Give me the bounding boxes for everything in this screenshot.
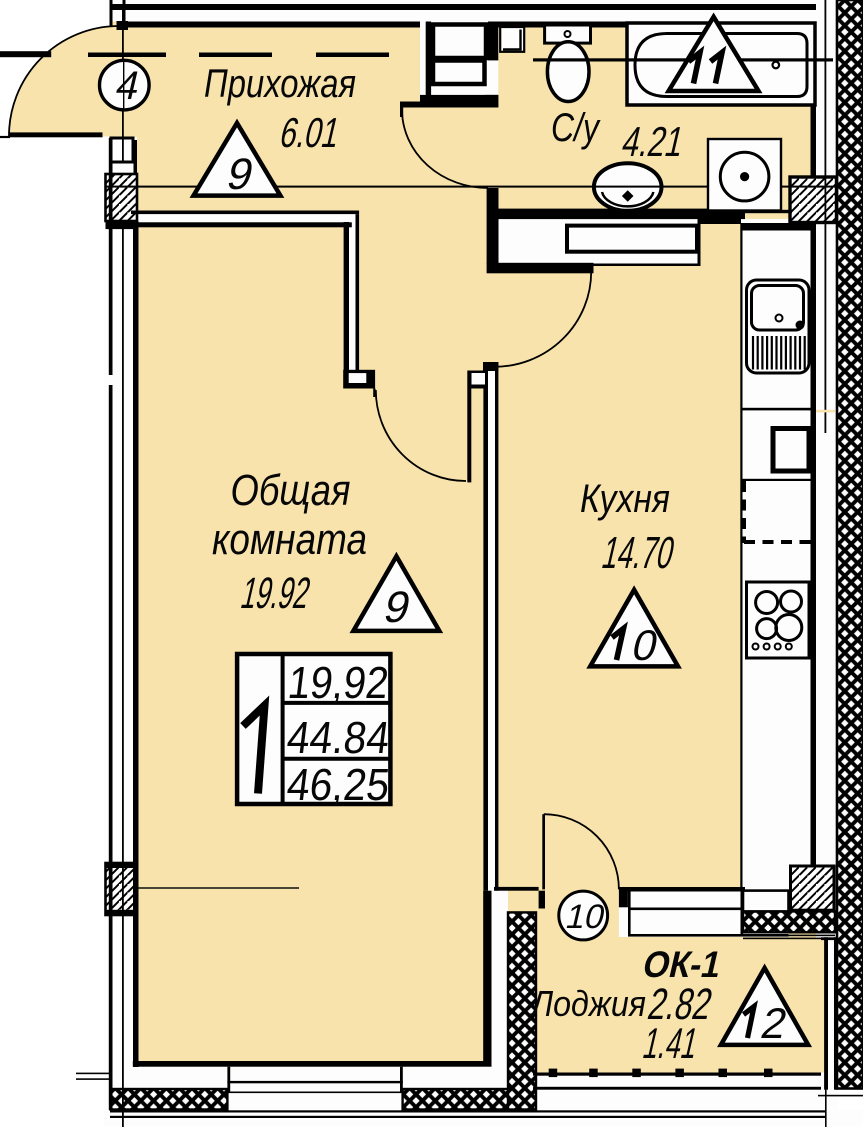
svg-text:С/у: С/у bbox=[551, 106, 601, 150]
svg-text:1.41: 1.41 bbox=[639, 1020, 703, 1067]
svg-text:ОК-1: ОК-1 bbox=[639, 943, 726, 984]
svg-text:6.01: 6.01 bbox=[276, 109, 345, 156]
svg-text:Лоджия: Лоджия bbox=[529, 983, 646, 1024]
svg-text:46,25: 46,25 bbox=[284, 759, 392, 810]
svg-text:комната: комната bbox=[212, 515, 367, 564]
svg-text:4.21: 4.21 bbox=[618, 118, 689, 165]
svg-text:19,92: 19,92 bbox=[285, 657, 391, 708]
svg-text:44.84: 44.84 bbox=[284, 712, 392, 763]
svg-text:Общая: Общая bbox=[231, 466, 351, 515]
svg-text:Прихожая: Прихожая bbox=[204, 62, 356, 106]
svg-text:14.70: 14.70 bbox=[598, 528, 680, 578]
svg-text:19.92: 19.92 bbox=[237, 570, 315, 618]
svg-text:Кухня: Кухня bbox=[580, 477, 670, 521]
